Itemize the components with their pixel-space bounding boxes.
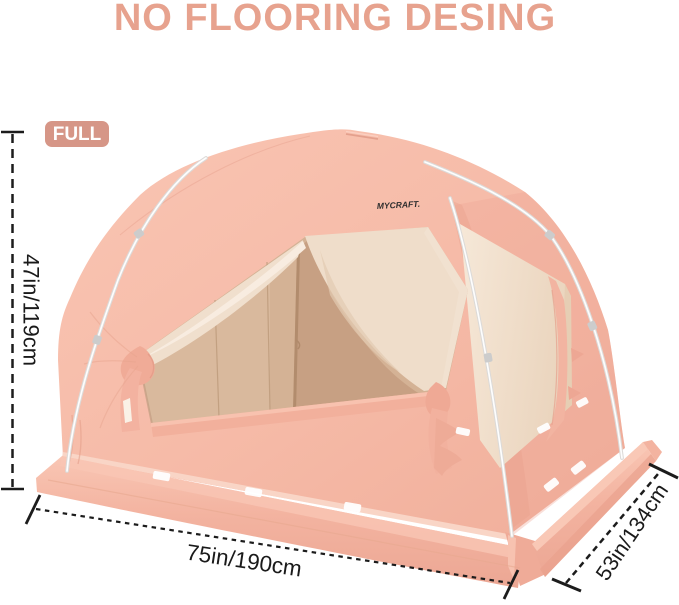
svg-text:NO FLOORING DESING: NO FLOORING DESING <box>114 0 556 39</box>
svg-text:75in/190cm: 75in/190cm <box>185 540 304 582</box>
svg-text:47in/119cm: 47in/119cm <box>19 254 44 366</box>
svg-text:FULL: FULL <box>53 124 102 145</box>
